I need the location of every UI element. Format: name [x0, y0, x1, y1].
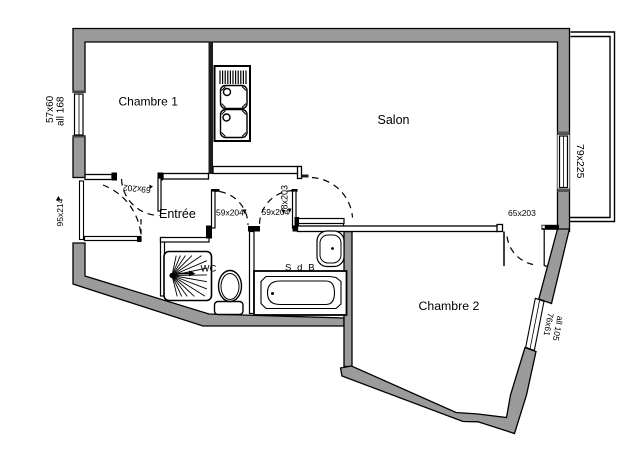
svg-text:all 168: all 168	[56, 96, 67, 126]
svg-text:8x203: 8x203	[280, 185, 290, 210]
svg-text:WC: WC	[201, 264, 217, 275]
svg-text:57x60: 57x60	[45, 95, 56, 123]
svg-text:95x214: 95x214	[55, 198, 65, 226]
svg-text:Chambre 1: Chambre 1	[119, 95, 179, 109]
svg-text:59x204: 59x204	[216, 208, 244, 218]
svg-text:Entrée: Entrée	[159, 207, 196, 221]
svg-text:S d B: S d B	[285, 263, 316, 274]
svg-text:Chambre 2: Chambre 2	[419, 299, 480, 313]
svg-text:Salon: Salon	[378, 113, 410, 127]
svg-text:65x203: 65x203	[508, 208, 536, 218]
svg-text:79x225: 79x225	[574, 144, 586, 179]
